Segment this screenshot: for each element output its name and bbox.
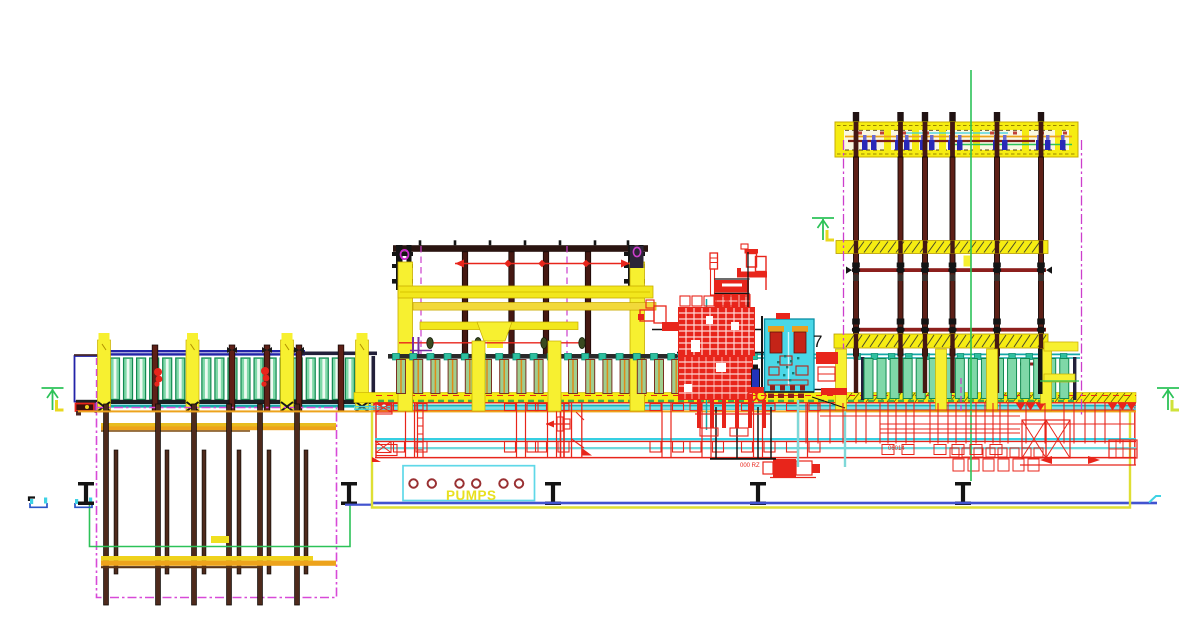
svg-text:PUMPS: PUMPS	[446, 488, 497, 503]
svg-text:000 RZ: 000 RZ	[740, 463, 760, 469]
svg-text:06014: 06014	[888, 446, 905, 452]
svg-text:7: 7	[813, 332, 822, 351]
